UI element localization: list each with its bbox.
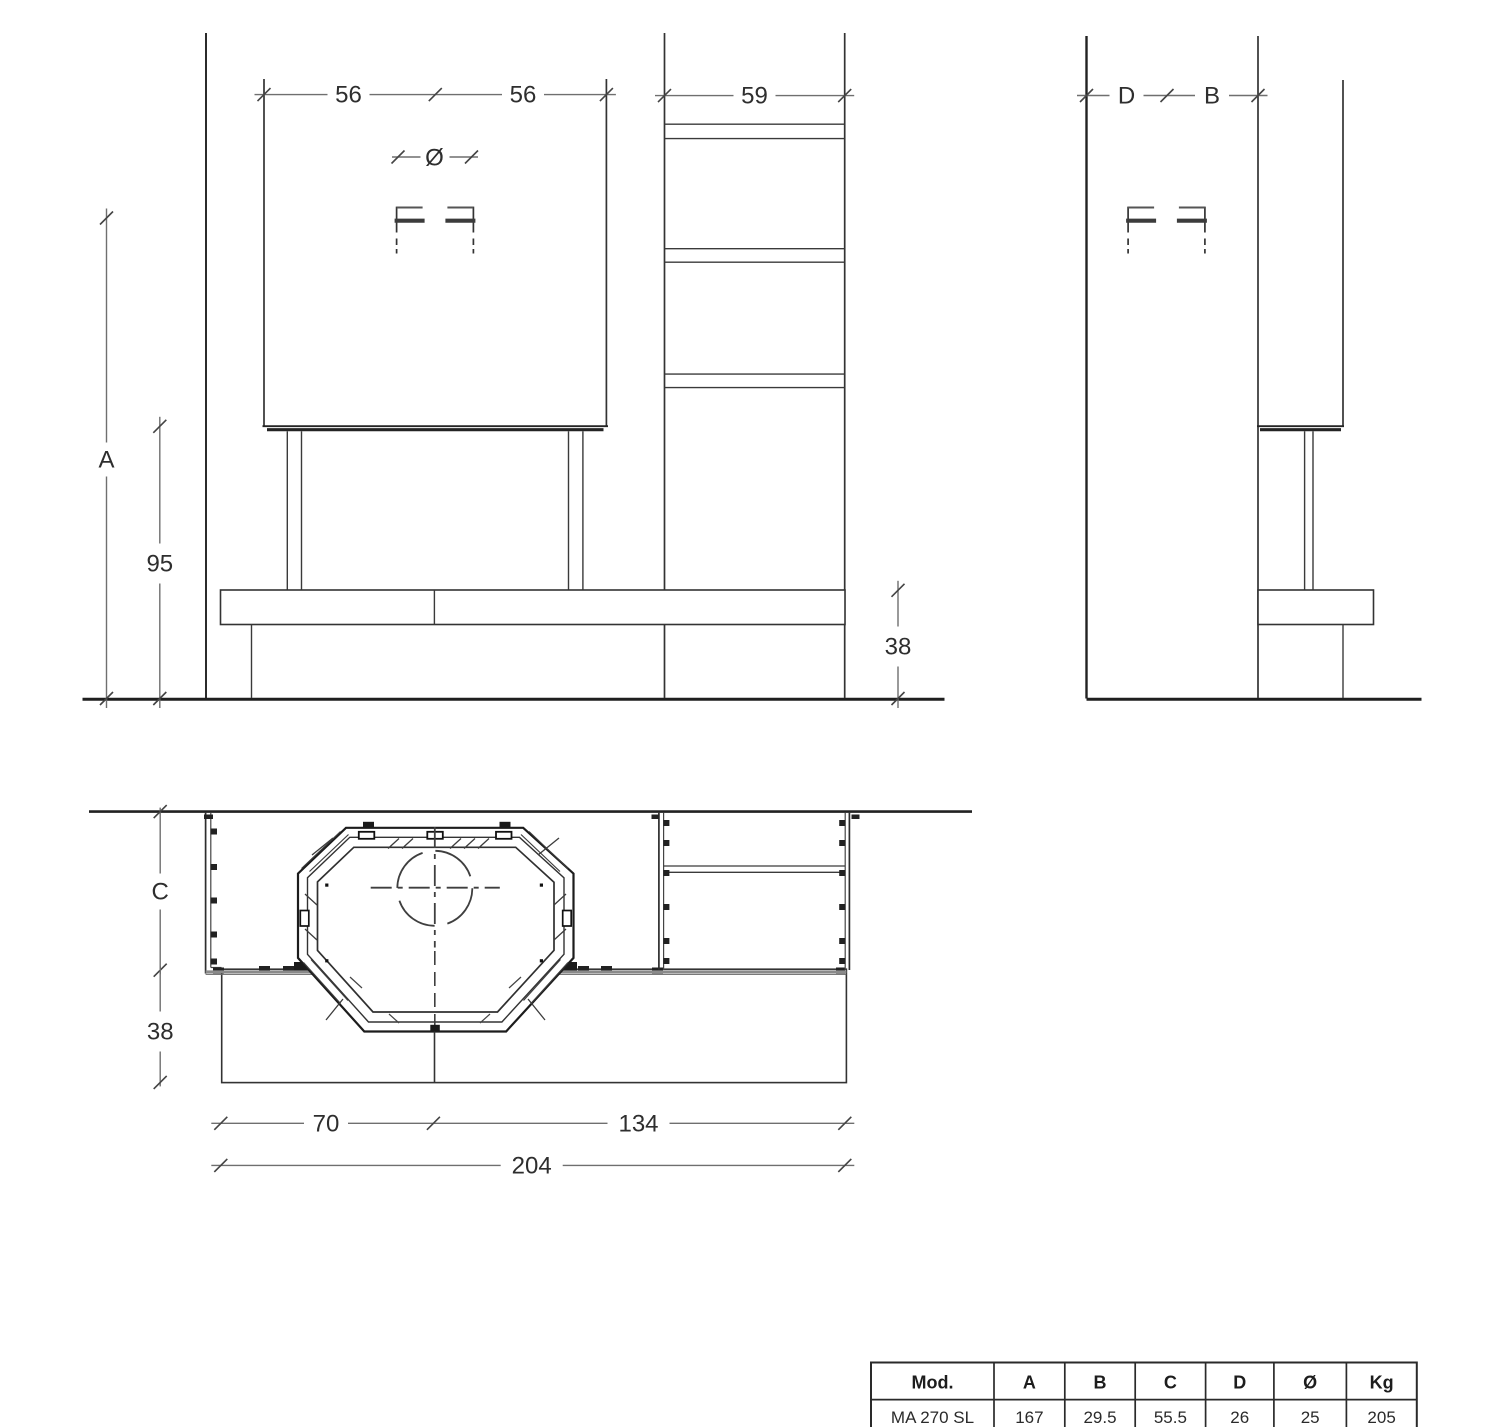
svg-text:38: 38 bbox=[147, 1019, 174, 1046]
svg-text:95: 95 bbox=[146, 551, 173, 578]
svg-text:205: 205 bbox=[1367, 1408, 1395, 1427]
svg-text:A: A bbox=[98, 447, 114, 474]
svg-text:C: C bbox=[152, 879, 169, 906]
svg-text:204: 204 bbox=[512, 1152, 552, 1179]
svg-text:Ø: Ø bbox=[1303, 1373, 1317, 1393]
svg-text:Mod.: Mod. bbox=[912, 1373, 954, 1393]
svg-text:26: 26 bbox=[1230, 1408, 1249, 1427]
svg-text:A: A bbox=[1023, 1373, 1036, 1393]
svg-text:70: 70 bbox=[313, 1110, 340, 1137]
svg-text:D: D bbox=[1118, 83, 1135, 110]
svg-text:134: 134 bbox=[618, 1110, 658, 1137]
svg-text:B: B bbox=[1094, 1373, 1107, 1393]
svg-text:29.5: 29.5 bbox=[1083, 1408, 1116, 1427]
svg-text:55.5: 55.5 bbox=[1154, 1408, 1187, 1427]
svg-text:25: 25 bbox=[1301, 1408, 1320, 1427]
svg-text:56: 56 bbox=[335, 82, 362, 109]
svg-text:38: 38 bbox=[885, 634, 912, 661]
svg-text:Ø: Ø bbox=[425, 145, 444, 172]
svg-text:D: D bbox=[1233, 1373, 1246, 1393]
svg-text:Kg: Kg bbox=[1370, 1373, 1394, 1393]
svg-text:MA 270 SL: MA 270 SL bbox=[891, 1408, 974, 1427]
svg-text:56: 56 bbox=[510, 82, 537, 109]
svg-text:B: B bbox=[1204, 83, 1220, 110]
svg-text:167: 167 bbox=[1015, 1408, 1043, 1427]
svg-text:59: 59 bbox=[741, 83, 768, 110]
svg-text:C: C bbox=[1164, 1373, 1177, 1393]
